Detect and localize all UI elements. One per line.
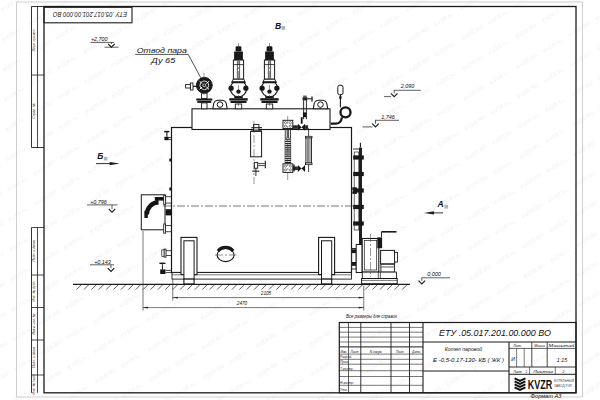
svg-text:ЕТУ .05.017.201.00.000 ВО: ЕТУ .05.017.201.00.000 ВО [53,10,127,19]
svg-text:Б: Б [97,151,103,161]
svg-text:KVZR: KVZR [528,378,553,392]
svg-text:Перв. примен.: Перв. примен. [32,29,36,52]
svg-text:Котел паровой: Котел паровой [445,345,483,352]
svg-text:Е -0,5-0,17-130- КБ ( ЖК ): Е -0,5-0,17-130- КБ ( ЖК ) [433,357,504,363]
svg-text:Лит.: Лит. [512,344,521,348]
svg-text:+0,796: +0,796 [90,199,107,205]
svg-text:Ду 65: Ду 65 [150,57,175,65]
svg-text:Отвод пара: Отвод пара [137,46,187,55]
svg-text:И: И [511,356,515,362]
svg-text:Н.контр.: Н.контр. [340,381,354,385]
svg-text:Лист: Лист [512,370,522,374]
svg-text:Лист: Лист [350,350,359,354]
svg-text:Подп. и дата: Подп. и дата [32,347,36,368]
svg-text:Разраб.: Разраб. [340,355,352,359]
svg-text:Изм.: Изм. [340,350,347,354]
svg-text:Все размеры для справок: Все размеры для справок [346,313,398,319]
svg-text:Дата: Дата [411,350,420,354]
svg-text:ЗАВОД РЭП: ЗАВОД РЭП [554,384,573,388]
svg-text:2: 2 [562,370,565,374]
svg-text:2105: 2105 [260,291,272,296]
svg-text:В: В [275,21,281,31]
svg-text:Инв. № дубл.: Инв. № дубл. [32,281,36,302]
svg-text:Подп.: Подп. [396,350,404,354]
svg-text:0,000: 0,000 [427,271,441,277]
svg-text:1,746: 1,746 [381,114,395,120]
svg-text:КОТЕЛЬНЫЙ: КОТЕЛЬНЫЙ [554,379,575,383]
svg-text:Масштаб: Масштаб [549,344,576,348]
svg-text:+2,700: +2,700 [91,36,108,42]
svg-text:Пров.: Пров. [340,360,349,364]
svg-text:Взам. инв. №: Взам. инв. № [32,313,36,334]
svg-text:Формат А3: Формат А3 [531,394,562,399]
svg-text:1:15: 1:15 [557,357,568,363]
svg-text:Масса: Масса [534,344,545,348]
svg-text:ЕТУ .05.017.201.00.000 ВО: ЕТУ .05.017.201.00.000 ВО [439,328,551,338]
svg-text:2,090: 2,090 [400,83,415,89]
svg-text:2470: 2470 [236,301,248,306]
svg-text:Инв. № подл.: Инв. № подл. [32,373,36,394]
svg-text:Утв.: Утв. [340,388,348,392]
svg-text:Листов: Листов [531,370,553,374]
svg-text:А: А [436,199,443,209]
svg-text:N докум.: N докум. [370,350,383,354]
svg-text:Подп. и дата: Подп. и дата [32,240,36,261]
svg-text:Т.контр.: Т.контр. [340,367,353,371]
svg-text:+0,143: +0,143 [94,259,111,265]
svg-text:1: 1 [526,370,528,374]
svg-text:Справ. №: Справ. № [32,103,36,119]
